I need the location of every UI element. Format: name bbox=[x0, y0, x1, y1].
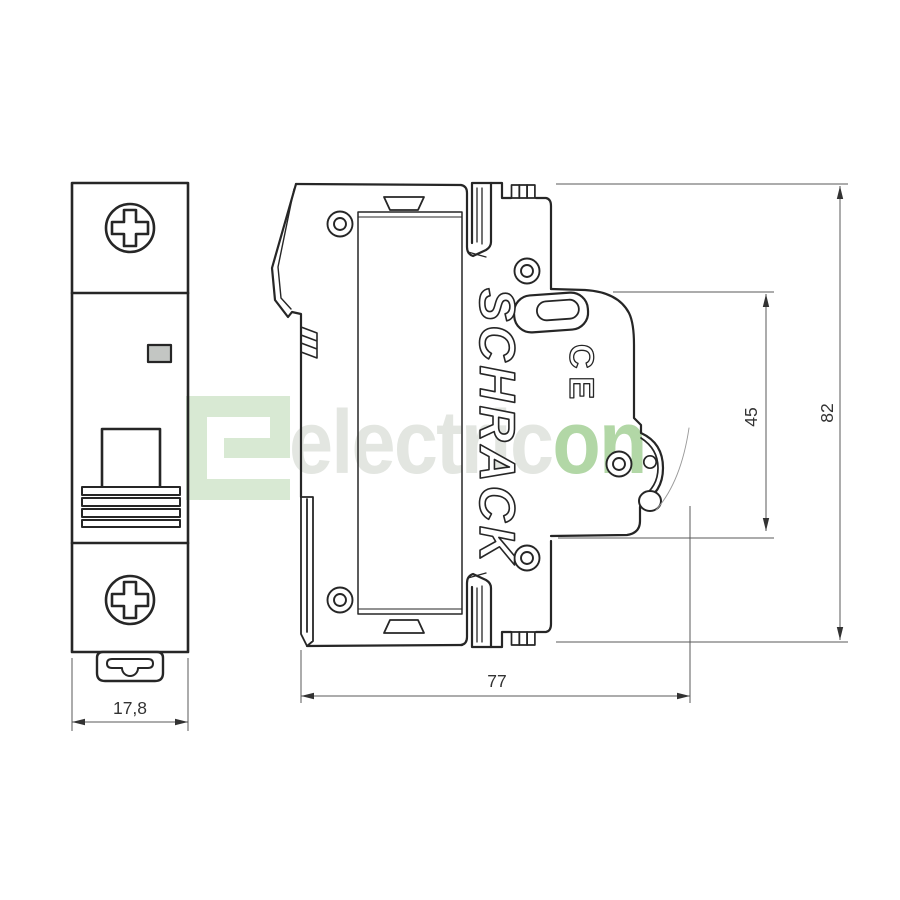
schrack-brand-text: SCHRACK bbox=[469, 288, 525, 566]
panel-notch-bottom bbox=[384, 620, 424, 633]
dimension-height: 82 bbox=[556, 184, 848, 642]
technical-drawing-page: electricon bbox=[0, 0, 900, 900]
side-bottom-edge bbox=[307, 645, 462, 646]
screw-head-icon-top bbox=[106, 204, 154, 252]
side-view: SCHRACK CE bbox=[272, 183, 689, 647]
dim-label-front-offset: 45 bbox=[741, 407, 761, 426]
toggle-lever-front bbox=[102, 429, 160, 488]
ce-mark: CE bbox=[562, 344, 600, 407]
din-hook-ridges bbox=[301, 327, 317, 358]
screw-head-icon-bottom bbox=[106, 576, 154, 624]
side-centre-panel bbox=[358, 197, 462, 633]
toggle-grip-ridges bbox=[82, 487, 180, 527]
side-rear-edge-inner bbox=[278, 189, 294, 309]
dimension-front-offset: 45 bbox=[558, 292, 774, 538]
dim-label-front-width: 17,8 bbox=[113, 698, 147, 718]
terminal-comb bbox=[512, 185, 535, 198]
dim-label-depth: 77 bbox=[487, 671, 506, 691]
side-top-edge bbox=[296, 184, 461, 185]
drawing-canvas: SCHRACK CE 17,8 77 45 bbox=[0, 0, 900, 900]
din-clip-tab bbox=[97, 652, 163, 681]
din-clip-spring bbox=[301, 497, 313, 646]
dim-label-height: 82 bbox=[817, 403, 837, 422]
side-rear-edge bbox=[272, 184, 301, 497]
panel-notch-top bbox=[384, 197, 424, 210]
front-view bbox=[72, 183, 188, 681]
status-indicator-window bbox=[148, 345, 171, 362]
latch-pin bbox=[644, 456, 656, 468]
